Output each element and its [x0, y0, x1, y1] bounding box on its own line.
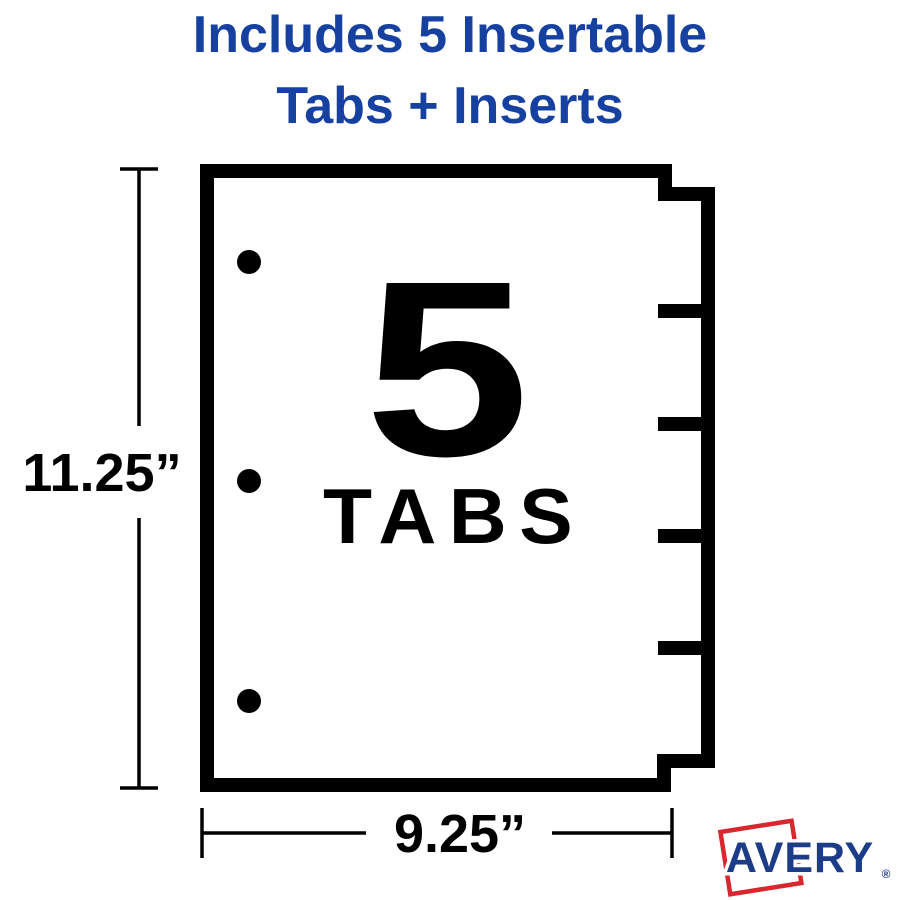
width-dimension-label: 9.25” — [394, 804, 526, 864]
punch-hole-top — [237, 250, 261, 274]
registered-trademark-icon: ® — [882, 867, 891, 881]
width-dimension: 9.25” — [202, 804, 672, 864]
avery-logo-wordmark: AVERY — [726, 834, 874, 882]
punch-hole-middle — [237, 469, 261, 493]
punch-hole-bottom — [237, 689, 261, 713]
divider-diagram: 5 TABS 11.25” 9.25” AVERY ® — [0, 0, 900, 900]
avery-logo: AVERY ® — [720, 821, 890, 894]
height-dimension: 11.25” — [22, 169, 181, 788]
tab-count-number: 5 — [365, 229, 530, 508]
height-dimension-label: 11.25” — [22, 443, 181, 503]
tab-count-label: TABS — [323, 472, 585, 560]
product-image: Includes 5 Insertable Tabs + Inserts 5 T… — [0, 0, 900, 900]
